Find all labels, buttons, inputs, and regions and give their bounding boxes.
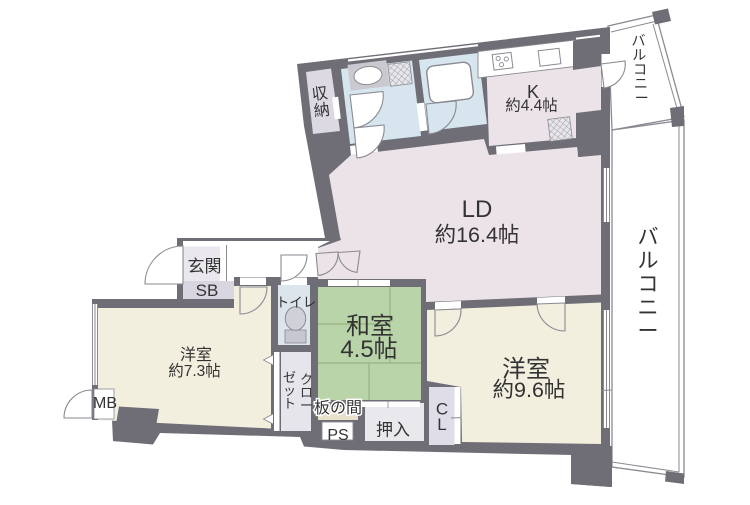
svg-text:SB: SB xyxy=(196,281,219,300)
svg-text:押入: 押入 xyxy=(376,421,410,440)
svg-text:約9.6帖: 約9.6帖 xyxy=(493,378,566,402)
svg-text:板の間: 板の間 xyxy=(314,399,362,417)
svg-text:ト: ト xyxy=(283,396,296,411)
svg-text:納: 納 xyxy=(313,101,331,121)
svg-text:MB: MB xyxy=(93,395,117,412)
svg-text:ニ: ニ xyxy=(638,297,659,320)
svg-text:バ: バ xyxy=(638,226,659,249)
svg-text:洋室: 洋室 xyxy=(180,346,212,364)
svg-text:4.5帖: 4.5帖 xyxy=(340,336,397,363)
svg-text:L: L xyxy=(437,415,446,434)
svg-text:ー: ー xyxy=(300,398,313,413)
svg-text:コ: コ xyxy=(638,273,659,296)
svg-text:約7.3帖: 約7.3帖 xyxy=(168,362,221,380)
svg-text:玄関: 玄関 xyxy=(188,257,222,276)
svg-text:ー: ー xyxy=(635,90,649,106)
svg-text:ー: ー xyxy=(638,320,659,343)
svg-text:PS: PS xyxy=(327,427,348,444)
svg-text:トイレ: トイレ xyxy=(276,295,317,310)
svg-text:約4.4帖: 約4.4帖 xyxy=(505,97,558,115)
svg-text:約16.4帖: 約16.4帖 xyxy=(435,223,520,247)
svg-text:ル: ル xyxy=(638,250,659,273)
svg-text:LD: LD xyxy=(462,196,493,223)
